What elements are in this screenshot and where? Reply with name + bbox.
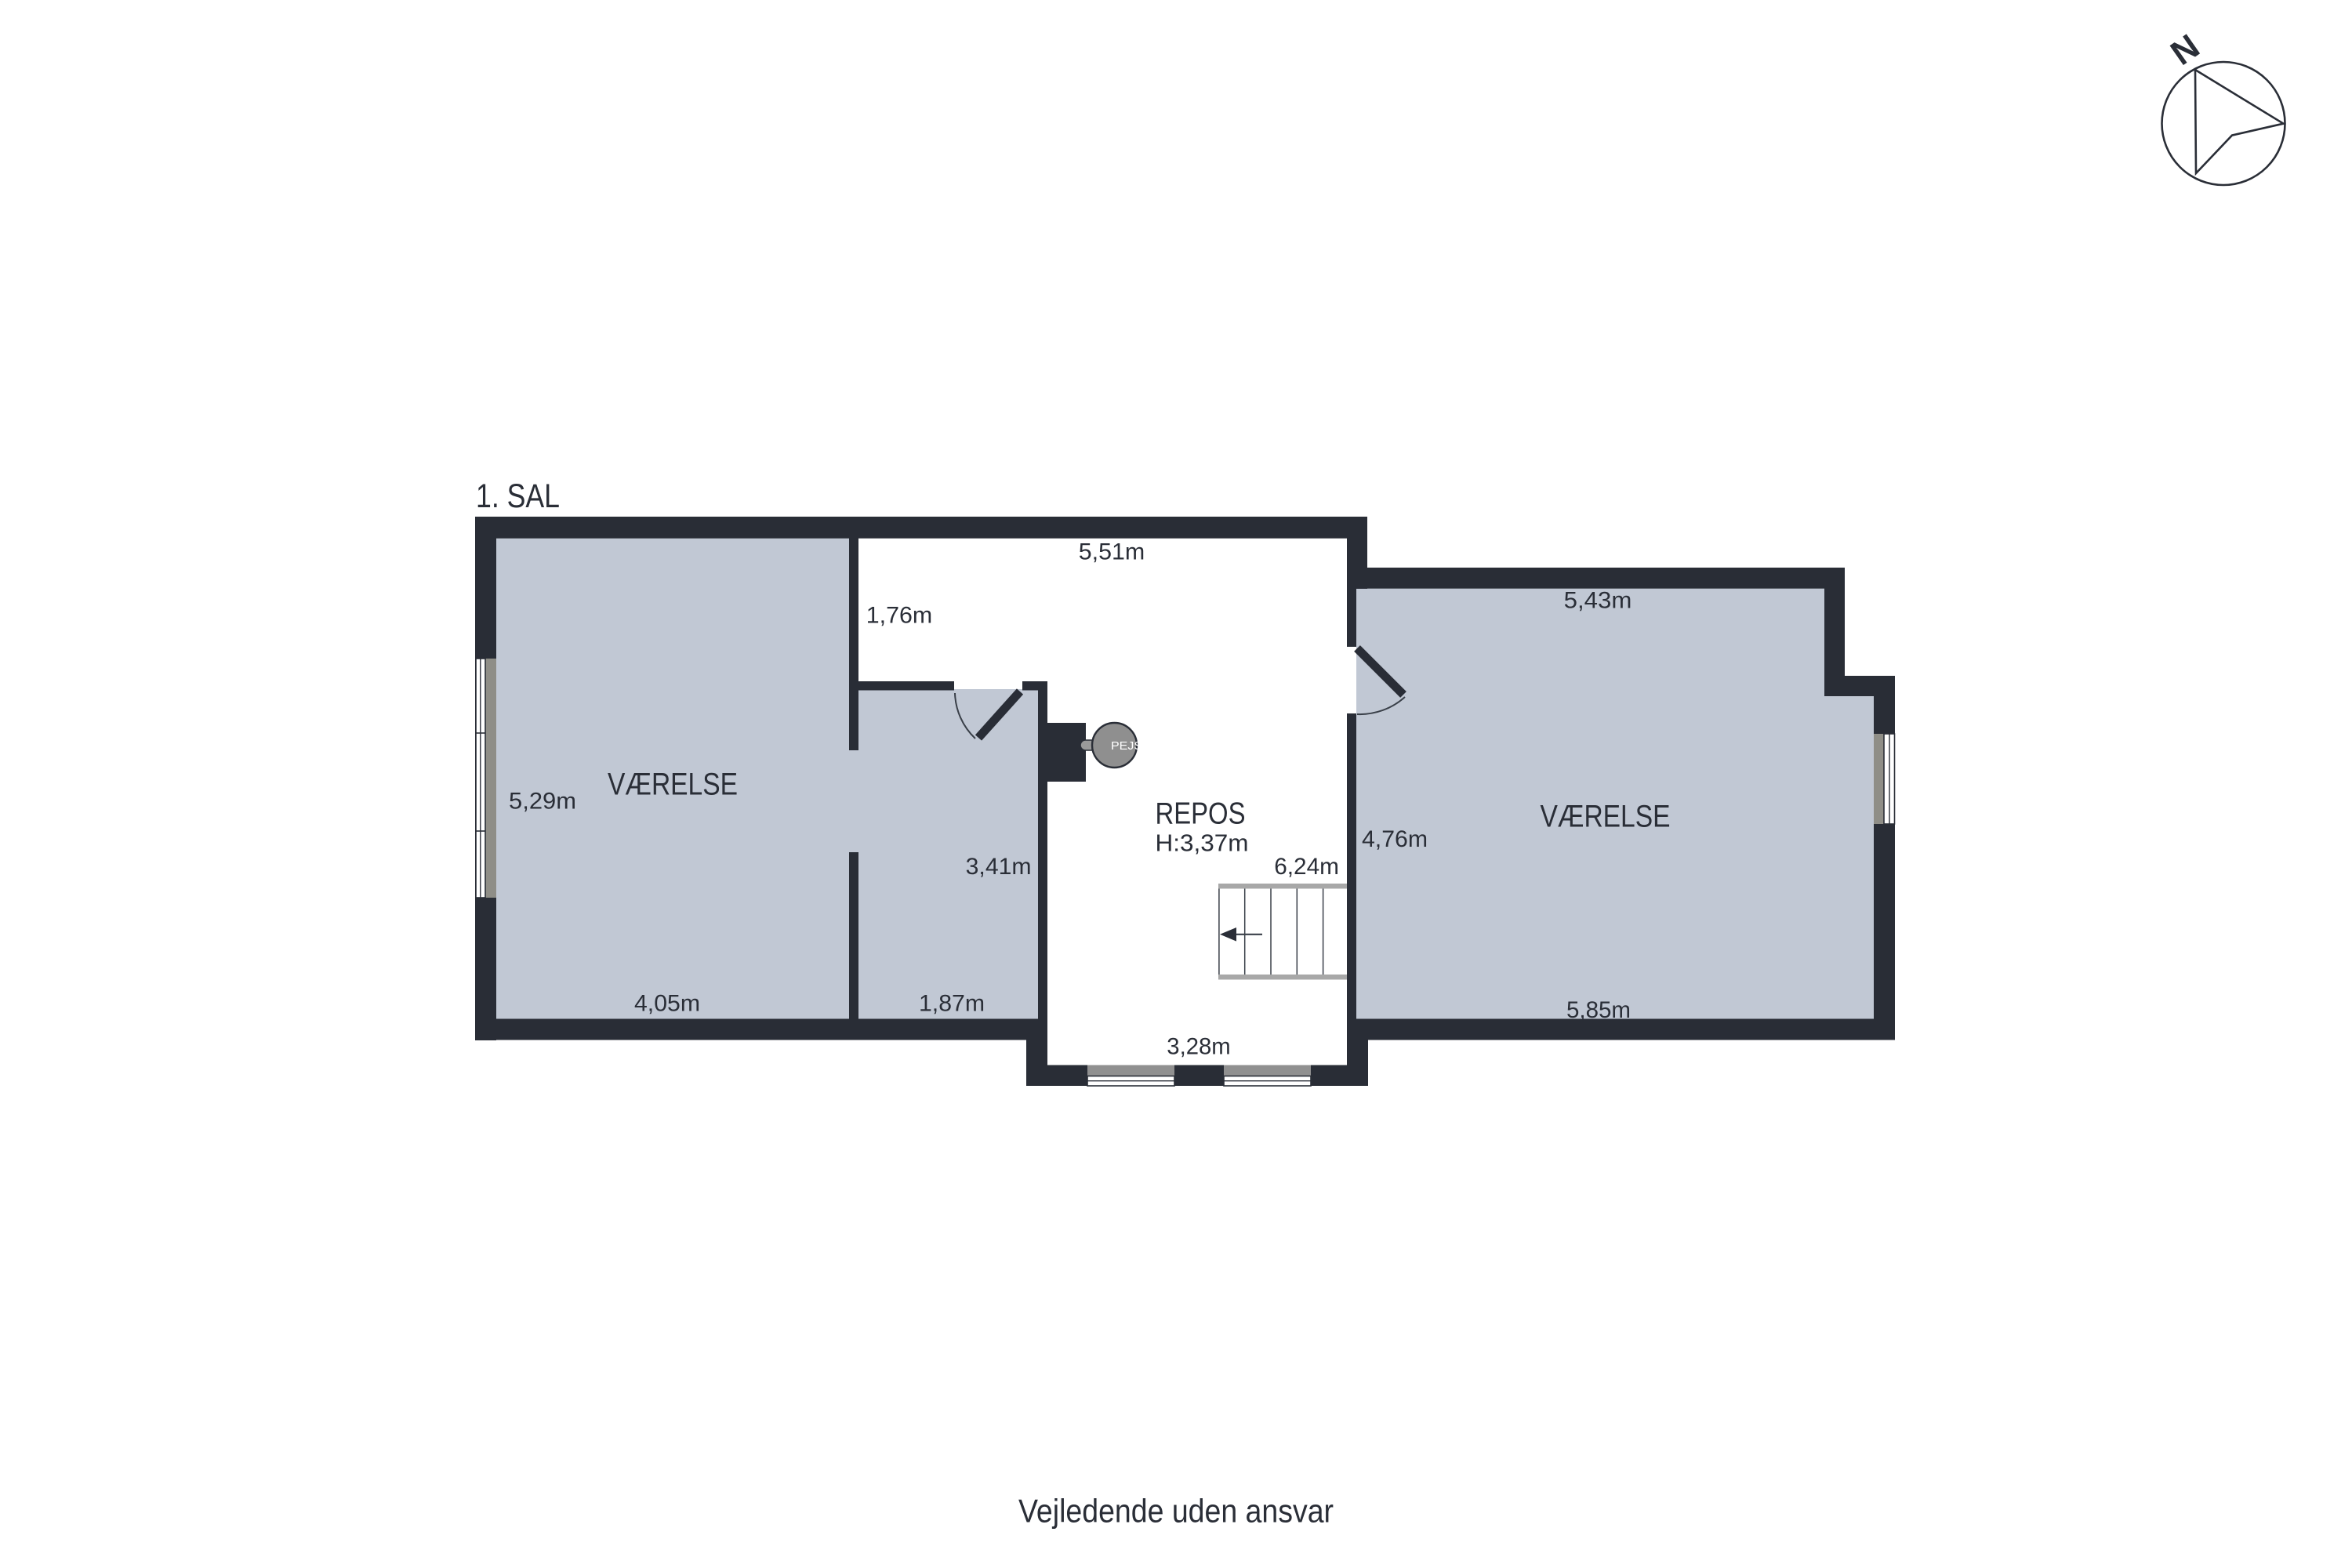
svg-text:3,28m: 3,28m [1167,1034,1230,1060]
svg-text:VÆRELSE: VÆRELSE [608,767,738,801]
svg-text:Vejledende uden ansvar: Vejledende uden ansvar [1018,1493,1334,1530]
svg-text:6,24m: 6,24m [1274,854,1339,880]
svg-text:4,76m: 4,76m [1362,826,1428,852]
svg-text:5,85m: 5,85m [1566,997,1631,1023]
svg-text:VÆRELSE: VÆRELSE [1541,799,1671,833]
svg-text:1,76m: 1,76m [866,603,932,629]
svg-text:H:3,37m: H:3,37m [1156,830,1249,857]
svg-text:4,05m: 4,05m [634,991,700,1017]
svg-text:5,51m: 5,51m [1079,539,1145,565]
svg-text:REPOS: REPOS [1156,797,1246,831]
svg-text:5,29m: 5,29m [509,789,576,815]
svg-text:5,43m: 5,43m [1564,588,1632,614]
svg-text:1. SAL: 1. SAL [476,477,560,515]
svg-text:1,87m: 1,87m [919,991,985,1017]
svg-text:3,41m: 3,41m [966,854,1032,880]
svg-text:PEJS: PEJS [1111,740,1142,753]
